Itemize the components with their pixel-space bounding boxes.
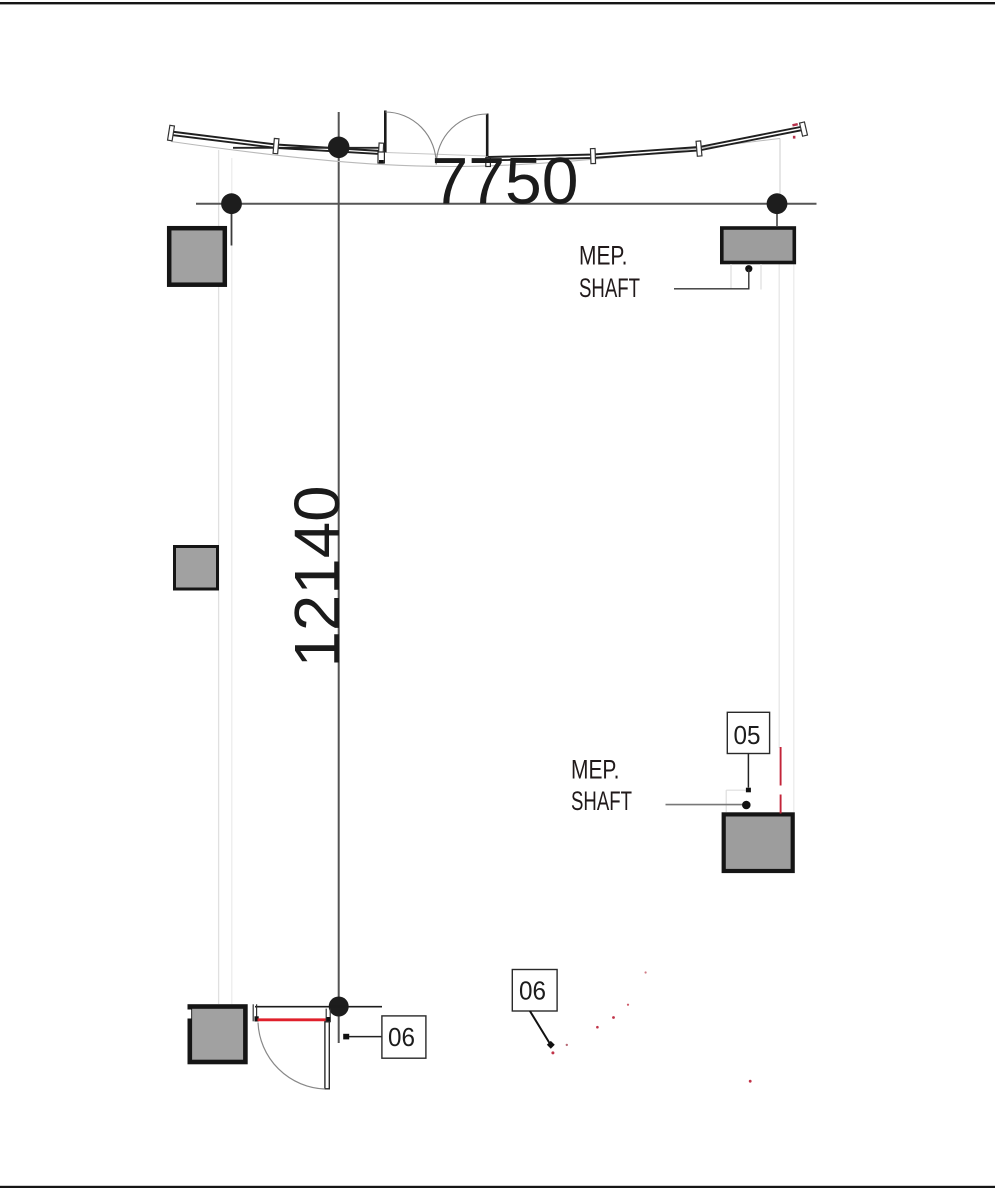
svg-text:05: 05	[734, 722, 761, 750]
svg-text:SHAFT: SHAFT	[571, 786, 632, 816]
svg-text:7750: 7750	[432, 144, 579, 218]
svg-text:06: 06	[519, 978, 546, 1006]
svg-text:SHAFT: SHAFT	[579, 273, 640, 303]
svg-text:06: 06	[388, 1024, 415, 1052]
svg-text:MEP.: MEP.	[571, 755, 620, 785]
svg-text:12140: 12140	[281, 486, 353, 668]
svg-text:MEP.: MEP.	[579, 240, 628, 270]
